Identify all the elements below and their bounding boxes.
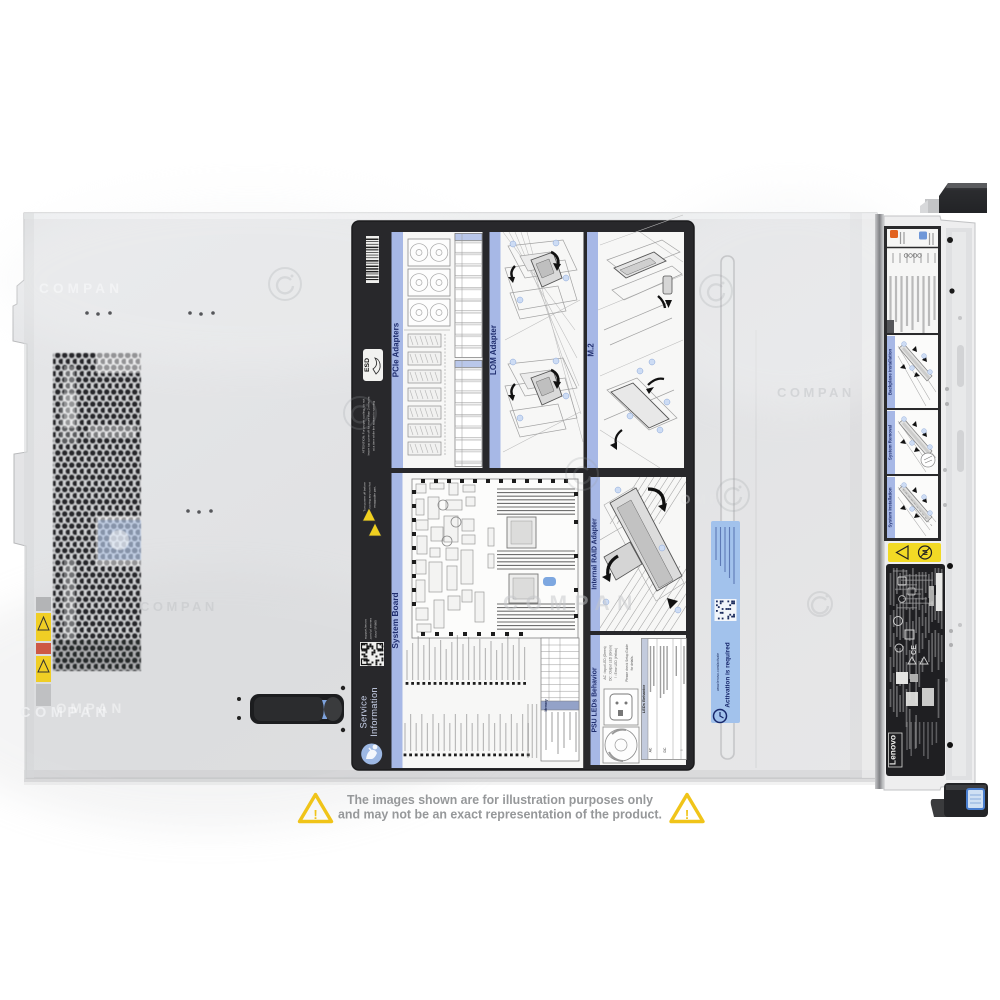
svg-text:Lenovo: Lenovo [888, 735, 898, 765]
svg-text:Turn power off before: Turn power off before [363, 482, 367, 512]
svg-text:DC: DC [663, 747, 667, 752]
svg-text:!: ! [313, 807, 317, 822]
svg-text:AC : Input LED (Green): AC : Input LED (Green) [603, 646, 607, 679]
svg-text:OMPAN: OMPAN [56, 701, 125, 716]
svg-text:Backplane Installation: Backplane Installation [888, 349, 893, 396]
svg-text:!: ! [685, 807, 689, 822]
svg-text:COMPAN: COMPAN [503, 592, 640, 615]
svg-text:support.lenovo: support.lenovo [364, 619, 368, 640]
svg-text:docs/ SR665: docs/ SR665 [374, 620, 378, 638]
svg-text:Service: Service [359, 695, 369, 728]
svg-text:System Installation: System Installation [888, 487, 893, 527]
svg-text:Information: Information [369, 687, 379, 737]
svg-text:DC : Output LED (Green): DC : Output LED (Green) [609, 645, 613, 681]
svg-text:PCIe Adapters: PCIe Adapters [391, 322, 400, 377]
svg-text:COMPAN: COMPAN [777, 385, 855, 400]
svg-text:System Board: System Board [390, 592, 400, 648]
svg-text:!: ! [680, 749, 684, 750]
svg-text:swappable part.: swappable part. [373, 486, 377, 508]
svg-text:LEDs Behavior: LEDs Behavior [641, 684, 646, 713]
svg-text:www.lenovo.com/activate: www.lenovo.com/activate [716, 653, 720, 691]
svg-text:! : Error LED (Yellow): ! : Error LED (Yellow) [614, 648, 618, 678]
svg-text:ESD: ESD [364, 358, 371, 372]
svg-text:.com/ p/ servers: .com/ p/ servers [369, 618, 373, 640]
svg-text:LOM Adapter: LOM Adapter [489, 325, 498, 375]
svg-text:and may not be an exact repres: and may not be an exact representation o… [338, 807, 662, 822]
svg-text:PSU LEDs Behavior: PSU LEDs Behavior [591, 667, 598, 732]
svg-text:for details.: for details. [630, 656, 634, 671]
svg-text:M.2: M.2 [587, 343, 596, 357]
svg-text:Memory: Memory [544, 699, 548, 711]
svg-text:OMPAN: OMPAN [680, 492, 749, 507]
svg-text:COMPAN: COMPAN [39, 281, 123, 296]
svg-text:removing any non-hot: removing any non-hot [368, 482, 372, 512]
svg-text:The images shown are for illus: The images shown are for illustration pu… [347, 792, 654, 807]
svg-text:Activation is required: Activation is required [725, 642, 732, 707]
svg-text:CE: CE [911, 645, 918, 655]
svg-text:System Removal: System Removal [888, 425, 893, 460]
svg-text:Internal RAID Adapter: Internal RAID Adapter [591, 518, 598, 590]
svg-text:Please check Setup Guide: Please check Setup Guide [625, 644, 629, 682]
svg-text:COMPAN: COMPAN [140, 599, 218, 614]
svg-text:AC: AC [649, 747, 653, 752]
